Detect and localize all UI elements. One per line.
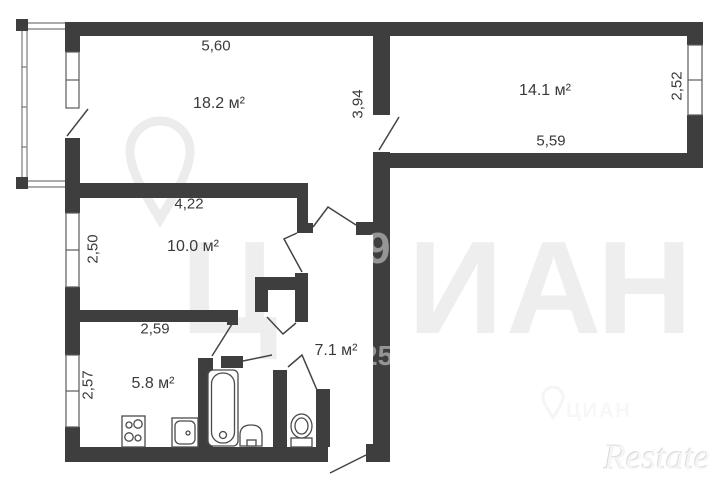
area-label-hallway: 7.1 м² [314, 342, 357, 360]
toilet-door-swing [288, 355, 317, 390]
closet-door-swing [267, 317, 296, 334]
area-label-kitchen: 5.8 м² [131, 375, 174, 393]
bathroom-door-swing [243, 355, 272, 361]
dim-label-bedroom-width: 5,59 [536, 133, 565, 150]
dim-label-kitchen-height: 2,57 [80, 370, 97, 399]
dim-label-room3-width: 4,22 [174, 196, 203, 213]
kitchen-door-swing [212, 321, 234, 356]
area-label-room3: 10.0 м² [167, 238, 219, 256]
bathtub [208, 370, 238, 446]
watermark-digit: 9 [366, 224, 390, 274]
balcony-door-swing [67, 109, 88, 136]
cian-logo-text: ЦИАН [566, 400, 632, 423]
balcony-railing [21, 23, 65, 187]
restate-logo: Restate [604, 436, 710, 478]
floorplan-canvas: Ц И А Н [0, 0, 725, 484]
window-kitchen [66, 355, 79, 427]
dim-label-living-height: 3,94 [350, 89, 367, 118]
watermark-digit: 25 [362, 340, 393, 372]
washbasin [240, 425, 262, 446]
stove [122, 416, 145, 447]
room3-door-swing [284, 233, 302, 272]
dim-label-room3-height: 2,50 [85, 234, 102, 263]
window-bedroom [688, 45, 702, 115]
entrance-door-swing [330, 455, 366, 473]
toilet [291, 414, 312, 447]
dim-label-top-width: 5,60 [201, 38, 230, 55]
living-door-swing [313, 207, 356, 227]
cian-pin-icon [541, 386, 565, 420]
dim-label-kitchen-width: 2,59 [140, 321, 169, 338]
area-label-bedroom: 14.1 м² [519, 82, 571, 100]
dim-label-bedroom-height: 2,52 [669, 71, 686, 100]
area-label-living-room: 18.2 м² [193, 95, 245, 113]
window-room3 [66, 213, 79, 287]
bedroom-door-swing [379, 117, 399, 150]
window-living-room [66, 52, 79, 108]
kitchen-sink [172, 418, 198, 447]
